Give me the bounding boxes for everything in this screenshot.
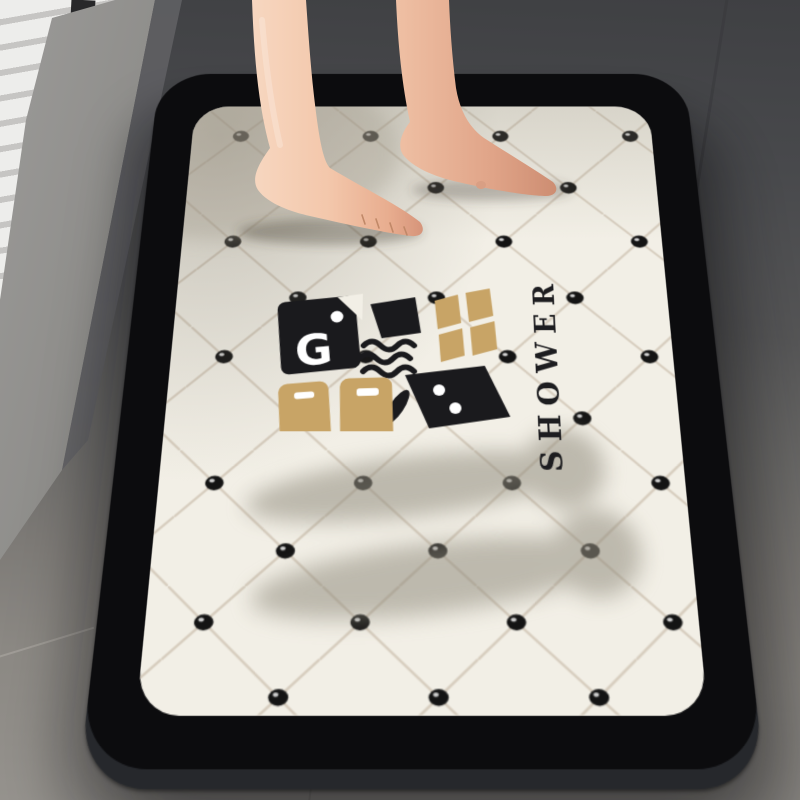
rear-leg bbox=[396, 0, 556, 196]
bathroom-scene: G SHOWER bbox=[0, 0, 800, 800]
front-leg bbox=[252, 0, 423, 236]
person-legs bbox=[0, 0, 800, 800]
rear-foot-toe bbox=[476, 181, 486, 189]
